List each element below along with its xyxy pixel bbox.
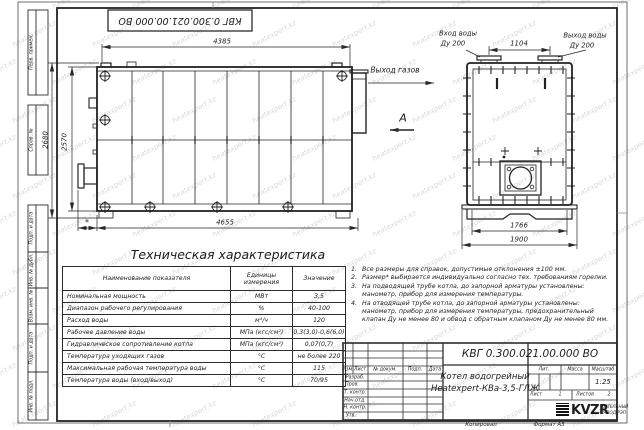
top-doc-number: КВГ 0.300.021.00.000 ВО: [118, 15, 241, 25]
note-item: 3.На подводящей трубе котла, до запорной…: [351, 283, 613, 300]
margin-label-sprav-no: Справ. №: [31, 128, 36, 151]
row-utv: Утв.: [346, 414, 356, 419]
side-view-dimensions: [48, 44, 358, 231]
scale-value: 1:25: [595, 378, 611, 386]
sheet-label: Лист: [530, 393, 542, 398]
mass-header: Масса: [567, 367, 582, 372]
col-podp: Подп.: [408, 368, 423, 373]
product-name-line2: Heatexpert-КВа-3,5-ГЛЖ: [431, 384, 539, 394]
spec-header-unit: Единицы измерения: [231, 267, 293, 291]
row-nach-otd: Нач.отд.: [344, 398, 365, 403]
margin-label-inv-dubl: Инв. № дубл.: [31, 254, 36, 287]
water-inlet-label: Вход воды: [439, 31, 477, 38]
col-doc: № докум.: [373, 368, 397, 373]
burner-flange: [500, 161, 541, 195]
kvzr-logo-icon: [556, 403, 569, 416]
water-inlet-dn: Ду 200: [441, 41, 465, 48]
gas-outlet-label: Выход газов: [370, 66, 419, 74]
spec-table-title: Техническая характеристика: [131, 249, 325, 262]
row-razrab: Разраб.: [346, 375, 365, 380]
col-data: Дата: [429, 368, 441, 373]
spec-row: Диапазон рабочего регулирования%40-100: [63, 303, 346, 315]
note-item: 2.Размер* выбирается индивидуально согла…: [351, 274, 613, 282]
margin-label-vzam-inv: Взам. инв. №: [31, 290, 36, 323]
sheets-value: 2: [607, 393, 610, 398]
spec-header-name: Наименование показателя: [63, 267, 231, 291]
top-view-linework: [462, 46, 586, 249]
row-n-kontr: Н. контр.: [344, 406, 367, 411]
dim-2680: 2680: [43, 131, 50, 149]
kvzr-logo-sub2: ЗАВОД РЭП: [601, 410, 626, 415]
spec-row: Расход водым³/ч120: [63, 315, 346, 327]
row-t-kontr: Т. контр.: [344, 391, 366, 396]
spec-header-row: Наименование показателя Единицы измерени…: [63, 267, 346, 291]
spec-row: Рабочее давление водыМПа (кгс/см²)0,3(3,…: [63, 327, 346, 339]
margin-label-perv-primen: Перв. примен.: [31, 34, 36, 70]
notes-list: 1.Все размеры для справок, допустимые от…: [351, 266, 613, 325]
margin-label-podp-data-2: Подп. и дата: [31, 332, 36, 365]
spec-row: Гидравлическое сопротивление котлаМПа (к…: [63, 339, 346, 351]
water-outlet-dn: Ду 200: [570, 43, 594, 50]
lifting-eyes: [99, 70, 348, 213]
sheet-value: 1: [558, 393, 561, 398]
dim-1900: 1900: [510, 237, 528, 244]
dim-1104: 1104: [510, 41, 528, 48]
margin-label-inv-podl: Инв. № подл.: [31, 379, 36, 412]
margin-label-podp-data-1: Подп. и дата: [31, 212, 36, 245]
kvzr-logo-sub1: КОТЕЛЬНЫЙ: [601, 404, 628, 409]
spec-row: Номинальная мощностьМВт3,5: [63, 291, 346, 303]
scale-header: Масштаб: [592, 367, 615, 372]
spec-row: Максимальная рабочая температура воды°С1…: [63, 363, 346, 375]
spec-row: Температура уходящих газов°Сне более 220: [63, 351, 346, 363]
col-izm: Изм.: [342, 368, 353, 373]
dim-2570: 2570: [62, 133, 69, 151]
lit-header: Лит.: [538, 367, 549, 372]
spec-row: Температура воды (вход/выход)°С70/95: [63, 375, 346, 387]
footer-copied: Копировал: [465, 422, 496, 428]
dim-4385: 4385: [213, 39, 231, 46]
view-a-label: А: [399, 113, 407, 124]
note-item: 4.На отводящей трубе котла, до запорной …: [351, 300, 613, 325]
col-list: Лист: [354, 368, 366, 373]
row-prov: Пров.: [345, 383, 359, 388]
spec-table: Наименование показателя Единицы измерени…: [62, 266, 346, 387]
engineering-drawing-sheet: heatexpert.kzheatexpert.kzheatexpert.kzh…: [0, 0, 644, 430]
sheets-label: Листов: [576, 393, 594, 398]
product-name-line1: Котел водогрейный: [440, 372, 529, 382]
dim-burner-asterisk: *: [85, 219, 89, 227]
footer-format: Формат А3: [533, 422, 564, 428]
water-outlet-label: Выход воды: [563, 33, 606, 40]
dim-4655: 4655: [216, 220, 234, 227]
dim-1766: 1766: [510, 223, 528, 230]
title-block-doc-number: КВГ 0.300.021.00.000 ВО: [462, 348, 598, 360]
spec-header-value: Значение: [293, 267, 346, 291]
